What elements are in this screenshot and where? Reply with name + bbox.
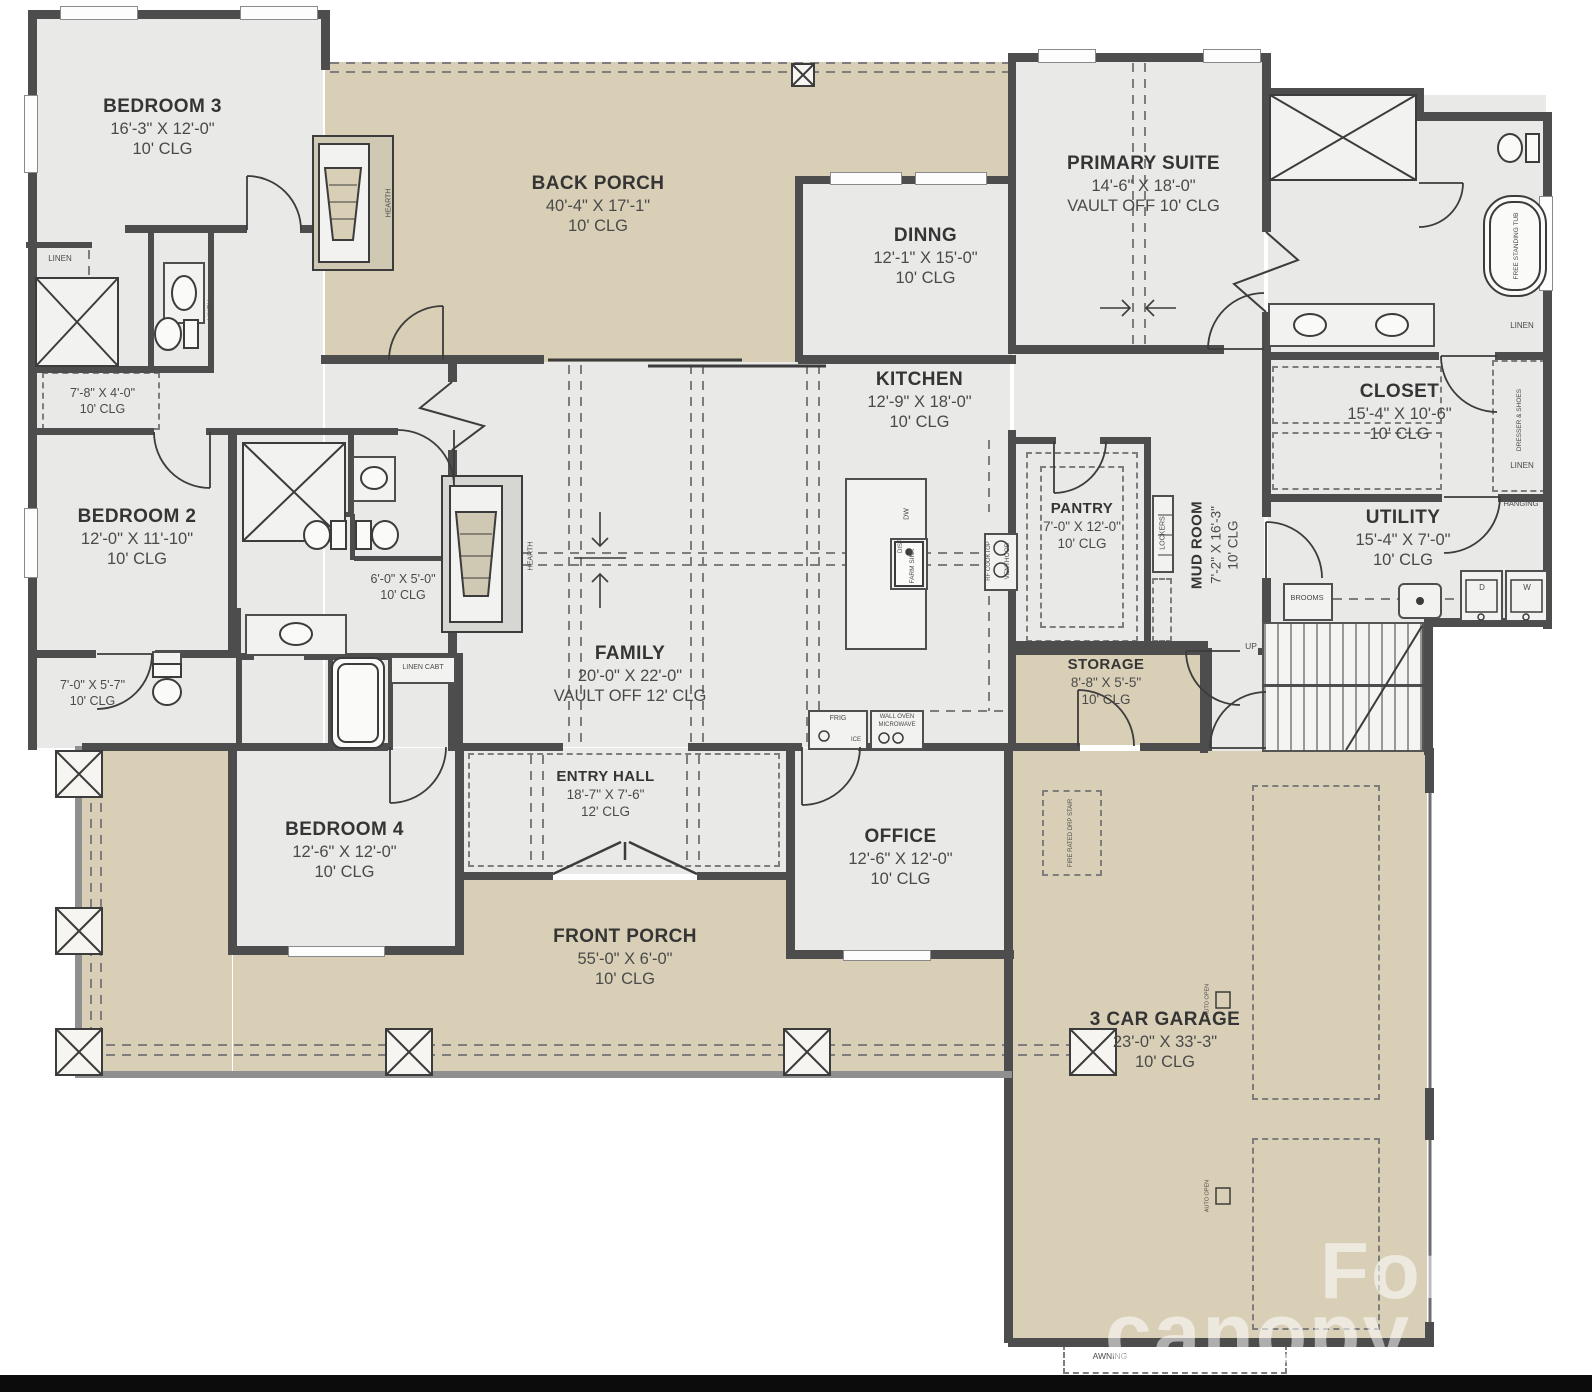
linen-cabt-label: LINEN CABT bbox=[390, 664, 456, 672]
floor-plan: BEDROOM 3 16'-3" X 12'-0" 10' CLG BACK P… bbox=[0, 0, 1592, 1392]
room-label-bedroom2: BEDROOM 2 12'-0" X 11'-10" 10' CLG bbox=[32, 505, 242, 570]
entry-double-door bbox=[553, 842, 697, 874]
room-label-back-porch: BACK PORCH 40'-4" X 17'-1" 10' CLG bbox=[478, 172, 718, 237]
ice-label: ICE bbox=[846, 737, 866, 744]
room-label-office: OFFICE 12'-6" X 12'-0" 10' CLG bbox=[788, 825, 1013, 890]
bottom-bar bbox=[0, 1375, 1592, 1392]
room-label-garage: 3 CAR GARAGE 23'-0" X 33'-3" 10' CLG bbox=[1040, 1008, 1290, 1073]
wall-oven-label: WALL OVEN bbox=[868, 714, 926, 721]
washer-label: W bbox=[1517, 584, 1537, 593]
up-label: UP bbox=[1238, 642, 1264, 651]
fixtures-layer bbox=[0, 0, 1592, 1392]
dryer-label: D bbox=[1472, 584, 1492, 593]
linen-label: LINEN bbox=[1496, 322, 1548, 331]
vault-break-symbol bbox=[574, 300, 1176, 608]
room-label-bedroom3: BEDROOM 3 16'-3" X 12'-0" 10' CLG bbox=[40, 95, 285, 160]
room-label-family: FAMILY 20'-0" X 22'-0" VAULT OFF 12' CLG bbox=[495, 642, 765, 707]
room-label-front-porch: FRONT PORCH 55'-0" X 6'-0" 10' CLG bbox=[500, 925, 750, 990]
room-label-bedroom4: BEDROOM 4 12'-6" X 12'-0" 10' CLG bbox=[222, 818, 467, 883]
room-label-utility: UTILITY 15'-4" X 7'-0" 10' CLG bbox=[1298, 506, 1508, 571]
linen-label: LINEN bbox=[34, 255, 86, 264]
room-label-pantry: PANTRY 7'-0" X 12'-0" 10' CLG bbox=[1022, 500, 1142, 553]
hall-label-b: 6'-0" X 5'-0" 10' CLG bbox=[348, 572, 458, 603]
watermark-line2: canopy bbox=[1105, 1285, 1411, 1382]
frig-label: FRIG bbox=[812, 715, 864, 723]
hanging-label: HANGING bbox=[1492, 500, 1550, 508]
room-label-storage: STORAGE 8'-8" X 5'-5" 10' CLG bbox=[1026, 656, 1186, 709]
room-label-closet: CLOSET 15'-4" X 10'-6" 10' CLG bbox=[1292, 380, 1507, 445]
sliding-door bbox=[548, 360, 826, 366]
room-label-kitchen: KITCHEN 12'-9" X 18'-0" 10' CLG bbox=[822, 368, 1017, 433]
microwave-label: MICROWAVE bbox=[868, 722, 926, 729]
room-label-dining: DINNG 12'-1" X 15'-0" 10' CLG bbox=[838, 224, 1013, 289]
hall-label-a: 7'-8" X 4'-0" 10' CLG bbox=[45, 386, 160, 417]
room-label-entry-hall: ENTRY HALL 18'-7" X 7'-6" 12' CLG bbox=[508, 768, 703, 821]
room-label-primary-suite: PRIMARY SUITE 14'-6" X 18'-0" VAULT OFF … bbox=[1026, 152, 1261, 217]
brooms-label: BROOMS bbox=[1282, 594, 1332, 602]
linen-label: LINEN bbox=[1496, 462, 1548, 471]
hall-label-c: 7'-0" X 5'-7" 10' CLG bbox=[35, 678, 150, 709]
stair-diagonal bbox=[1346, 626, 1422, 750]
